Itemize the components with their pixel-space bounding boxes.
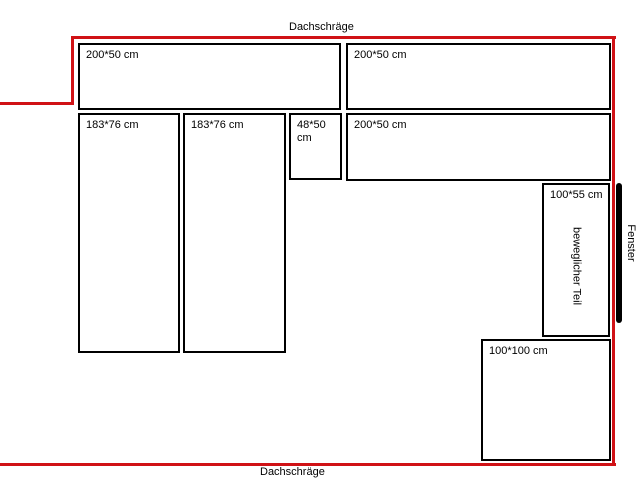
floor-plan-canvas: Dachschräge Dachschräge 200*50 cm 200*50… — [0, 0, 640, 480]
box-label: 48*50 cm — [297, 119, 326, 144]
box-200x50-middle: 200*50 cm — [346, 113, 611, 181]
box-183x76-right: 183*76 cm — [183, 113, 286, 353]
box-label: 200*50 cm — [354, 49, 407, 61]
box-label: 183*76 cm — [191, 119, 244, 131]
box-label: 183*76 cm — [86, 119, 139, 131]
wall-line-right — [612, 36, 615, 466]
box-label: 100*55 cm — [550, 189, 603, 201]
box-label: 200*50 cm — [86, 49, 139, 61]
box-183x76-left: 183*76 cm — [78, 113, 180, 353]
box-200x50-top-left: 200*50 cm — [78, 43, 341, 110]
roof-slope-label-top: Dachschräge — [289, 21, 354, 33]
window-bar — [616, 183, 622, 323]
box-48x50: 48*50 cm — [289, 113, 342, 180]
window-label: Fenster — [625, 224, 637, 261]
wall-line-top — [71, 36, 616, 39]
box-100x100: 100*100 cm — [481, 339, 611, 461]
wall-line-left-horizontal — [0, 102, 74, 105]
roof-slope-label-bottom: Dachschräge — [260, 466, 325, 478]
box-100x55-movable-part: 100*55 cm beweglicher Teil — [542, 183, 610, 337]
box-label: 100*100 cm — [489, 345, 548, 357]
box-200x50-top-right: 200*50 cm — [346, 43, 611, 110]
wall-line-left-vertical — [71, 36, 74, 105]
movable-part-label: beweglicher Teil — [570, 227, 583, 305]
box-label: 200*50 cm — [354, 119, 407, 131]
